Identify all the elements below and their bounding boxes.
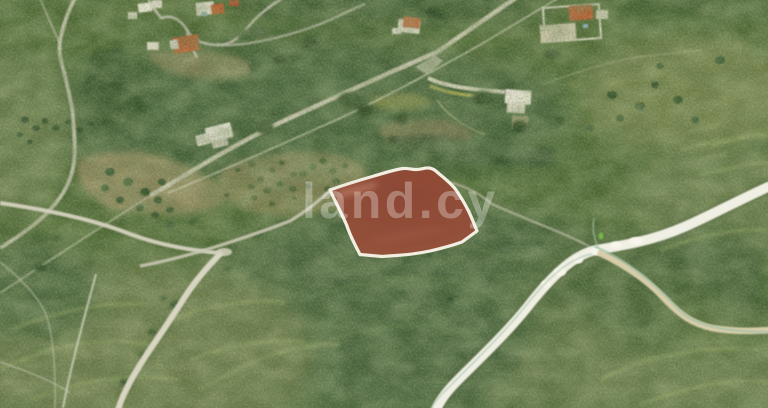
svg-text:land.cy: land.cy (302, 173, 499, 229)
